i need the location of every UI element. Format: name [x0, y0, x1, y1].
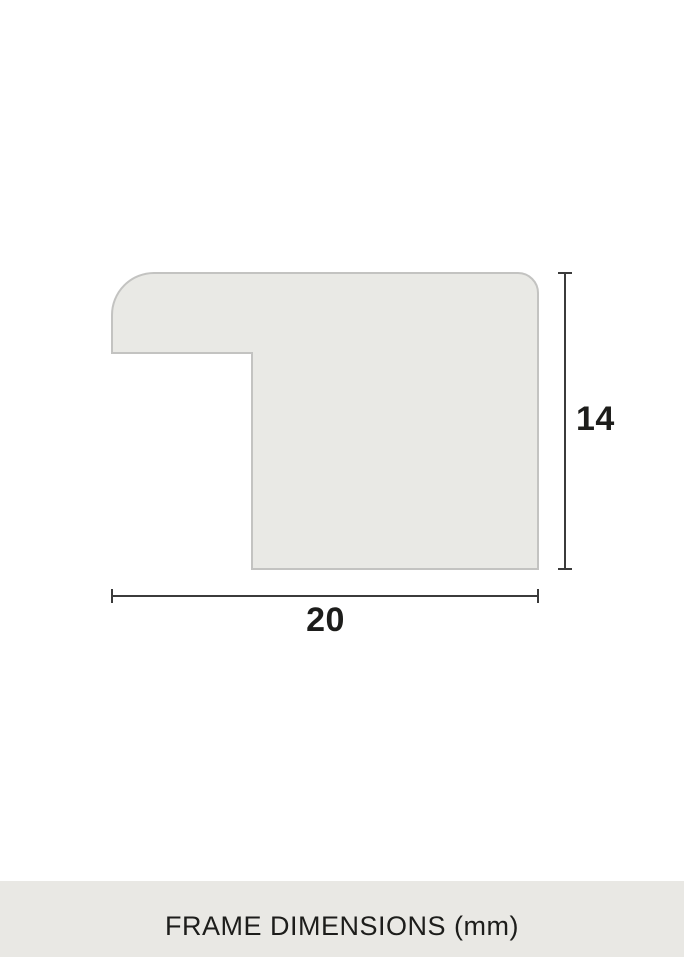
frame-dimensions-figure: 14 20 FRAME DIMENSIONS (mm): [0, 0, 684, 957]
width-dimension-label: 20: [285, 603, 366, 637]
profile-diagram-svg: [0, 0, 684, 881]
moulding-profile-shape: [112, 273, 538, 569]
caption-text: FRAME DIMENSIONS (mm): [165, 911, 519, 942]
caption-band: FRAME DIMENSIONS (mm): [0, 881, 684, 957]
height-dimension-label: 14: [576, 402, 615, 436]
profile-diagram: 14 20: [0, 0, 684, 881]
height-dimension-line: [558, 273, 572, 569]
